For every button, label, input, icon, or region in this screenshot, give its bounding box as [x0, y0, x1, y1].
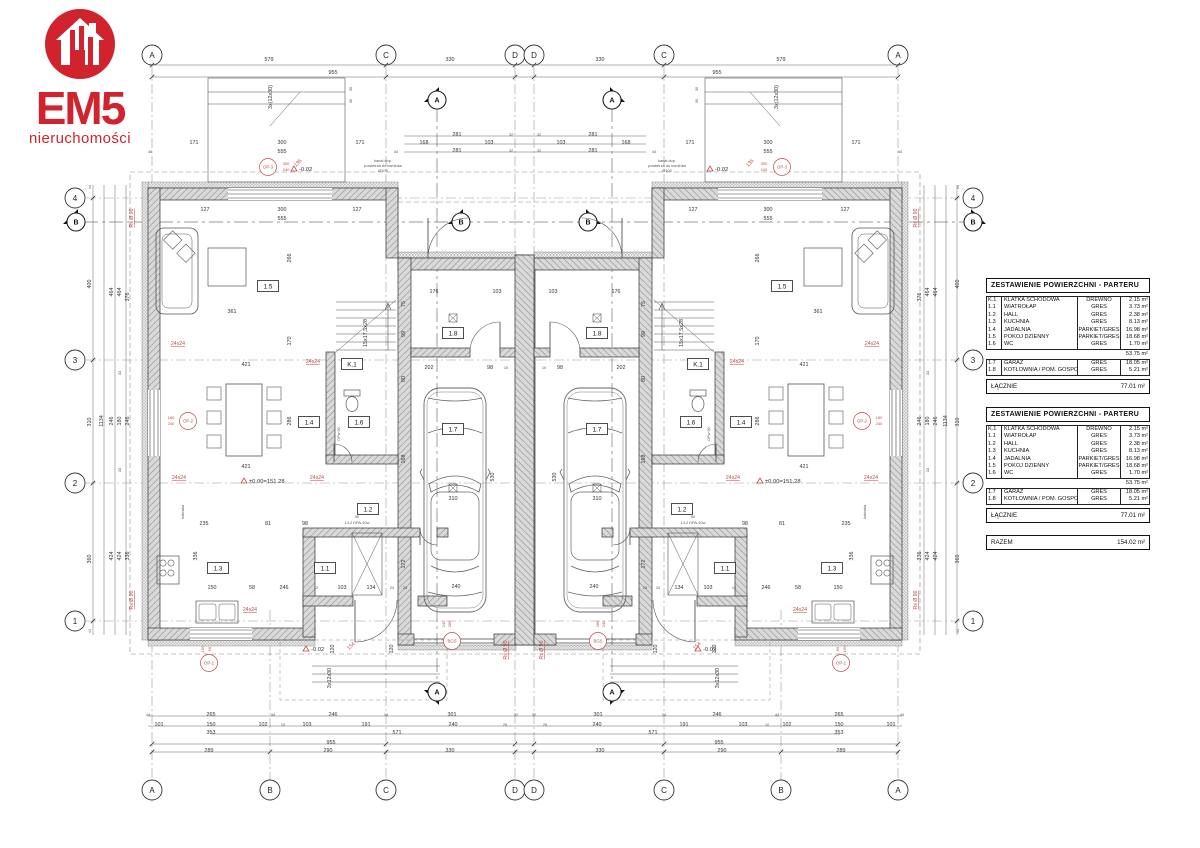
dimension-label: 33 — [925, 371, 930, 375]
section-marker-label: A — [609, 98, 614, 105]
dimension-label: 24x24 — [306, 359, 320, 365]
chair — [267, 435, 281, 448]
burner — [168, 560, 174, 566]
wall — [500, 348, 516, 357]
logo-subtitle: nieruchomości — [14, 130, 146, 147]
area-table-2: ZESTAWIENIE POWIERZCHNI - PARTERUK.1KLAT… — [986, 407, 1150, 523]
dimension-label: 300 — [761, 161, 768, 166]
dimension-label: 330 — [596, 748, 605, 754]
dimension-label: 81 — [265, 521, 271, 527]
dimension-label: 301 — [448, 712, 457, 718]
level-label: -0.02 — [299, 167, 312, 173]
dimension-label: 240 — [168, 421, 175, 426]
dimension-label: 240 — [601, 620, 606, 627]
razem-label: RAZEM — [991, 539, 1013, 546]
grid-marker-label: 4 — [73, 194, 78, 203]
dimension-label: 176 — [430, 289, 439, 295]
dimension-label: 336 — [125, 552, 131, 561]
dimension-label: 24x24 — [865, 341, 879, 347]
dimension-label: 171 — [686, 140, 695, 146]
dimension-label: 15x17,5x28 — [679, 319, 685, 347]
dimension-label: 265 — [835, 712, 844, 718]
room-label: 1.5 — [778, 283, 787, 290]
wall — [603, 596, 632, 606]
car — [560, 469, 564, 480]
grid-marker-label: A — [149, 51, 155, 60]
wall — [697, 596, 747, 606]
pillow — [177, 244, 195, 262]
dimension-label: 28 — [643, 585, 647, 590]
dimension-label: 336 — [917, 552, 923, 561]
annotation-label: OP-2 — [183, 419, 194, 424]
table-row: 1.2HALLGRES2.38 m² — [987, 312, 1149, 319]
wall-insulation — [735, 640, 902, 646]
dimension-label: 180 — [117, 417, 123, 426]
dimension-label: 168 — [401, 455, 407, 464]
table-row: 1.7GARAŻGRES18.05 m² — [987, 489, 1149, 496]
table-row: 1.6WCGRES1.70 m² — [987, 470, 1149, 477]
pillow — [855, 244, 873, 262]
dimension-label: 80 — [641, 376, 647, 382]
level-label: -0.02 — [703, 647, 716, 653]
dimension-label: 281 — [453, 132, 462, 138]
dimension-label: 285 — [447, 620, 452, 627]
kitchen-sink — [219, 604, 235, 620]
dimension-label: 421 — [242, 464, 251, 470]
chair — [829, 387, 843, 400]
dimension-label: 421 — [800, 362, 809, 368]
dimension-label: 300 — [278, 207, 287, 213]
dimension-label: 99 — [641, 331, 647, 337]
dimension-label: 14,2 DPA-10w — [345, 520, 370, 525]
dimension-label: 134 — [675, 585, 684, 591]
dimension-label: 98 — [557, 365, 563, 371]
dimension-label: 12 — [314, 585, 318, 590]
dimension-label: 579 — [265, 57, 274, 63]
dimension-label: 421 — [242, 362, 251, 368]
kitchen-sink — [812, 601, 854, 623]
dimension-label: 103 — [557, 140, 566, 146]
dimension-label: 3x(12x30) — [774, 85, 780, 109]
wall — [386, 188, 398, 258]
dimension-label: 44 — [652, 149, 657, 154]
dimension-label: 32 — [537, 132, 541, 137]
area-table-title: ZESTAWIENIE POWIERZCHNI - PARTERU — [986, 407, 1150, 422]
dimension-label: 154 — [346, 641, 356, 651]
annotation-label: OP-3 — [777, 165, 788, 170]
dimension-label: 24x24 — [793, 607, 807, 613]
wall — [398, 634, 414, 645]
dimension-label: 24x24 — [730, 359, 744, 365]
dimension-label: 421 — [800, 464, 809, 470]
dimension-label: 3x12x30 — [715, 668, 721, 688]
logo-title: EM5 — [14, 89, 146, 127]
dimension-label: 290 — [718, 748, 727, 754]
room-label: 1.8 — [593, 330, 602, 337]
dimension-label: 30 — [348, 86, 353, 91]
dimension-label: 134 — [367, 585, 376, 591]
dimension-label: 555 — [764, 149, 773, 155]
section-marker-label: B — [73, 220, 78, 227]
table-row: 1.5POKÓJ DZIENNYPARKIET/GRES18.68 m² — [987, 463, 1149, 470]
table-row: 1.5POKÓJ DZIENNYPARKIET/GRES18.68 m² — [987, 334, 1149, 341]
dimension-label: 32 — [537, 148, 541, 153]
car — [431, 492, 479, 560]
wall — [534, 258, 652, 270]
dimension-label: 361 — [228, 309, 237, 315]
dimension-label: 24x24 — [172, 475, 186, 481]
dimension-label: 10 — [504, 365, 509, 370]
dimension-label: 424 — [933, 552, 939, 561]
dimension-label: 44 — [87, 628, 92, 633]
dimension-label: 530 — [552, 473, 558, 482]
dimension-label: 464 — [117, 288, 123, 297]
annotation-label: OP-2 — [857, 419, 868, 424]
dimension-label: 154 — [692, 641, 702, 651]
dimension-label: 246 — [125, 417, 131, 426]
burner — [168, 570, 174, 576]
wall-insulation — [142, 182, 148, 640]
step-line — [270, 92, 300, 126]
grid-marker-label: C — [383, 51, 389, 60]
dimension-label: 24x24 — [171, 341, 185, 347]
dimension-label: 135 — [745, 158, 755, 168]
grid-marker-label: 3 — [73, 356, 78, 365]
dimension-label: Rs Ø 90 — [539, 640, 545, 659]
burner — [884, 570, 890, 576]
dimension-label: 310 — [955, 418, 961, 427]
dimension-label: 955 — [329, 70, 338, 76]
dimension-label: 127 — [201, 207, 210, 213]
dimension-label: 150 — [842, 645, 847, 652]
dimension-label: 103 — [739, 722, 748, 728]
grid-marker-label: D — [531, 786, 537, 795]
dimension-label: 361 — [814, 309, 823, 315]
dimension-label: 150 — [834, 585, 843, 591]
dimension-label: 15x17,5x28 — [363, 319, 369, 347]
porch-outline — [398, 202, 652, 258]
grid-marker-label: 1 — [73, 617, 78, 626]
burner — [884, 560, 890, 566]
section-marker-label: A — [434, 690, 439, 697]
dimension-label: Ø100 — [378, 168, 388, 173]
dimension-label: 286 — [287, 417, 293, 426]
dimension-label: 285 — [595, 620, 600, 627]
wall-insulation — [534, 252, 652, 258]
dimension-label: 246 — [109, 417, 115, 426]
burner — [160, 570, 166, 576]
room-label: 1.8 — [449, 330, 458, 337]
dimension-label: 555 — [764, 216, 773, 222]
dimension-label: 246 — [713, 712, 722, 718]
dimension-label: Ø100 — [662, 168, 672, 173]
dimension-label: 180 — [876, 415, 883, 420]
table-row: 1.4JADALNIAPARKIET/GRES16.98 m² — [987, 327, 1149, 334]
dimension-label: 202 — [617, 365, 626, 371]
dimension-label: 3x(12x30) — [268, 85, 274, 109]
table-row: 1.1WIATROŁAPGRES3.73 m² — [987, 304, 1149, 311]
dimension-label: 530 — [490, 473, 496, 482]
dimension-label: 246 — [917, 417, 923, 426]
dimension-label: 246 — [762, 585, 771, 591]
dimension-label: 180 — [168, 415, 175, 420]
dimension-label: 246 — [280, 585, 289, 591]
wall — [418, 596, 447, 606]
wall — [326, 455, 398, 464]
wall — [398, 258, 516, 270]
car — [568, 398, 622, 401]
dimension-label: 266 — [755, 254, 761, 263]
wall-insulation — [902, 182, 908, 640]
dimension-label: 240 — [593, 722, 602, 728]
dining-table — [226, 384, 262, 456]
dimension-label: 80 — [401, 376, 407, 382]
dimension-label: 32 — [514, 712, 518, 717]
dimension-label: 103 — [704, 585, 713, 591]
chair — [829, 411, 843, 424]
dimension-label: DPw 90 — [336, 426, 341, 440]
dimension-label: 75 — [401, 301, 407, 307]
dimension-label: 172 — [641, 560, 647, 569]
razem-total: RAZEM154.02 m² — [986, 532, 1150, 550]
table-row: K.1KLATKA SCHODOWADREWNO2.15 m² — [987, 426, 1149, 433]
razem-value: 154.02 m² — [1117, 539, 1145, 546]
dimension-label: 150 — [835, 722, 844, 728]
toilet — [690, 390, 706, 396]
grid-marker-label: 2 — [971, 479, 976, 488]
dimension-label: 330 — [446, 57, 455, 63]
dimension-label: 30 — [694, 86, 699, 91]
level-marker — [303, 646, 309, 651]
wall — [630, 528, 747, 537]
table-total: ŁĄCZNIE77.01 m² — [986, 379, 1150, 394]
table-row: 1.3KUCHNIAGRES8.13 m² — [987, 448, 1149, 455]
dimension-label: 127 — [841, 207, 850, 213]
coffee-table — [208, 248, 246, 286]
annotation-label: BGS — [593, 639, 602, 644]
dimension-label: Rs Ø 90 — [129, 590, 135, 609]
dimension-label: 424 — [117, 552, 123, 561]
room-label: 1.6 — [355, 419, 364, 426]
wall — [580, 348, 639, 357]
table-body: K.1KLATKA SCHODOWADREWNO2.15 m²1.1WIATRO… — [986, 425, 1150, 479]
dimension-label: 281 — [589, 132, 598, 138]
room-label: 1.7 — [593, 426, 602, 433]
dimension-label: 955 — [713, 70, 722, 76]
table-subtotal: 53.75 m² — [986, 350, 1150, 359]
dimension-label: 44 — [955, 628, 960, 633]
dimension-label: Rs Ø 90 — [503, 640, 509, 659]
grid-marker-label: 4 — [971, 194, 976, 203]
table-row: 1.2HALLGRES2.38 m² — [987, 441, 1149, 448]
dimension-label: 376 — [917, 293, 923, 302]
dimension-label: 289 — [837, 748, 846, 754]
dimension-label: 28 — [543, 722, 547, 727]
room-label: 1.1 — [321, 565, 330, 572]
dimension-label: 571 — [393, 730, 402, 736]
chair — [769, 411, 783, 424]
dimension-label: 330 — [596, 57, 605, 63]
dimension-label: 464 — [925, 288, 931, 297]
toilet — [346, 397, 358, 412]
dimension-label: 33 — [117, 371, 122, 375]
dimension-label: 127 — [689, 207, 698, 213]
room-label: 1.7 — [449, 426, 458, 433]
table-row: 1.6WCGRES1.70 m² — [987, 341, 1149, 348]
annotation-label: BGS — [447, 639, 456, 644]
dimension-label: 120 — [330, 645, 336, 654]
level-label: -0.02 — [715, 167, 728, 173]
sofa — [156, 228, 198, 314]
dimension-label: 44 — [394, 149, 399, 154]
table-row: K.1KLATKA SCHODOWADREWNO2.15 m² — [987, 297, 1149, 304]
dimension-label: 24 — [390, 585, 395, 590]
room-label: 1.2 — [364, 506, 373, 513]
pillow — [164, 231, 182, 249]
car — [568, 592, 622, 596]
dimension-label: 171 — [356, 140, 365, 146]
dimension-label: 281 — [589, 148, 598, 154]
dimension-label: 955 — [715, 740, 724, 746]
room-label: 1.3 — [214, 565, 223, 572]
dimension-label: 103 — [485, 140, 494, 146]
grid-marker-label: C — [383, 786, 389, 795]
dimension-label: 81 — [779, 521, 785, 527]
dimension-label: 555 — [278, 149, 287, 155]
grid-marker-label: A — [149, 786, 155, 795]
dimension-label: 235 — [842, 521, 851, 527]
dimension-label: 281 — [453, 148, 462, 154]
dimension-label: 300 — [764, 140, 773, 146]
area-table-title: ZESTAWIENIE POWIERZCHNI - PARTERU — [986, 278, 1150, 293]
room-label: 1.4 — [737, 419, 746, 426]
dimension-label: 310 — [87, 418, 93, 427]
room-label: 1.5 — [264, 283, 273, 290]
sofa — [852, 228, 894, 314]
section-marker-label: B — [970, 220, 975, 227]
dimension-label: 240 — [761, 167, 768, 172]
dimension-label: 353 — [835, 730, 844, 736]
burner — [160, 560, 166, 566]
razem-bar: RAZEM154.02 m² — [986, 535, 1150, 550]
dimension-label: 12 — [732, 585, 736, 590]
dimension-label: 376 — [125, 293, 131, 302]
kitchen-sink — [815, 604, 831, 620]
room-label: K.1 — [347, 361, 357, 368]
dimension-label: 14,2 DPA-10w — [681, 520, 706, 525]
dimension-label: 172 — [401, 560, 407, 569]
annotation-label: OP-3 — [263, 165, 274, 170]
dimension-label: 300 — [764, 207, 773, 213]
car — [431, 566, 479, 572]
room-label: K.1 — [693, 361, 703, 368]
dimension-label: 336 — [849, 552, 855, 561]
dimension-label: 44 — [898, 149, 903, 154]
dimension-label: 202 — [425, 365, 434, 371]
room-label: 1.4 — [305, 419, 314, 426]
grid-marker-label: C — [661, 786, 667, 795]
dimension-label: 266 — [287, 254, 293, 263]
dining-table — [788, 384, 824, 456]
dimension-label: 176 — [612, 289, 621, 295]
dimension-label: 191 — [680, 722, 689, 728]
car — [428, 592, 482, 596]
dimension-label: 24x24 — [243, 607, 257, 613]
dimension-label: 98 — [302, 521, 308, 527]
door-arc — [470, 322, 500, 352]
dimension-label: 98 — [742, 521, 748, 527]
dimension-label: 103 — [493, 289, 502, 295]
dimension-label: 240 — [449, 722, 458, 728]
dimension-label: 464 — [109, 288, 115, 297]
wall — [515, 255, 534, 645]
wall — [639, 258, 652, 638]
wall — [437, 528, 448, 537]
kitchen-sink — [834, 604, 851, 620]
dimension-label: 300 — [283, 161, 290, 166]
dimension-label: 168 — [420, 140, 429, 146]
dimension-label: 168 — [622, 140, 631, 146]
burner — [876, 560, 882, 566]
dimension-label: 28 — [503, 722, 507, 727]
section-marker-label: B — [458, 220, 463, 227]
dimension-label: lodówka — [180, 504, 185, 519]
wall — [636, 634, 652, 645]
dimension-label: Rs Ø 90 — [913, 590, 919, 609]
table-row: 1.8KOTŁOWNIA / POM. GOSPOD.GRES5.21 m² — [987, 496, 1149, 503]
dimension-label: 240 — [876, 421, 883, 426]
dimension-label: 330 — [446, 748, 455, 754]
chair — [207, 387, 221, 400]
grid-marker-label: C — [661, 51, 667, 60]
dimension-label: 246 — [329, 712, 338, 718]
dimension-label: 33 — [925, 468, 930, 472]
dimension-label: 240 — [441, 620, 446, 627]
door-arc — [550, 322, 580, 352]
dimension-label: 44 — [900, 712, 905, 717]
dimension-label: 1134 — [99, 415, 105, 427]
dimension-label: 127 — [353, 207, 362, 213]
dimension-label: 571 — [649, 730, 658, 736]
dimension-label: 464 — [933, 288, 939, 297]
wall — [398, 258, 411, 638]
dimension-label: 32 — [532, 712, 536, 717]
chair — [769, 435, 783, 448]
wall — [303, 528, 420, 537]
chair — [207, 435, 221, 448]
chair — [769, 387, 783, 400]
kitchen-sink — [199, 604, 216, 620]
section-marker-label: B — [585, 220, 590, 227]
chair — [207, 411, 221, 424]
kitchen-sink — [196, 601, 238, 623]
dimension-label: 120 — [653, 645, 659, 654]
car — [626, 469, 630, 480]
dimension-label: 290 — [324, 748, 333, 754]
dimension-label: 10 — [542, 365, 547, 370]
dimension-label: 310 — [449, 496, 458, 502]
dimension-label: 33 — [117, 468, 122, 472]
dimension-label: 424 — [109, 552, 115, 561]
dimension-label: 103 — [549, 289, 558, 295]
wall-insulation — [398, 252, 516, 258]
dimension-label: 30 — [348, 98, 353, 103]
table-row: 1.1WIATROŁAPGRES3.73 m² — [987, 433, 1149, 440]
dimension-label: 150 — [200, 645, 205, 652]
dimension-label: 170 — [755, 337, 761, 346]
dimension-label: 289 — [205, 748, 214, 754]
grid-marker-label: D — [512, 786, 518, 795]
